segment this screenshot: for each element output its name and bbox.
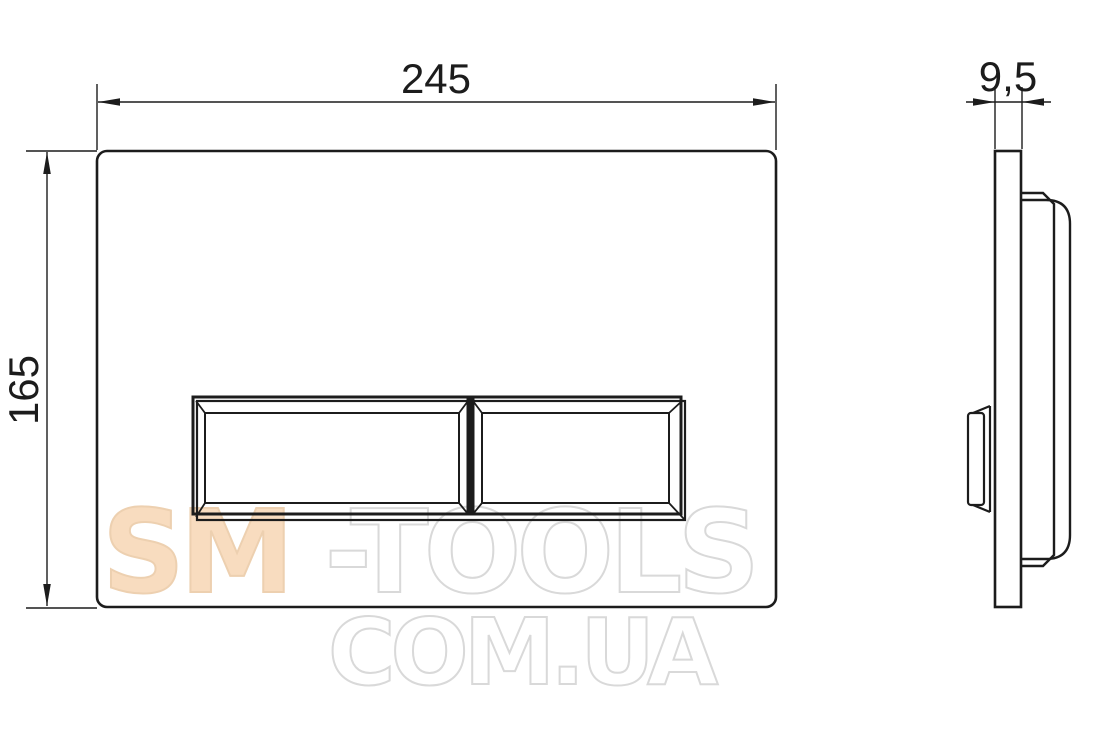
drawing-canvas: SM -TOOLS COM.UA [0,0,1102,735]
height-dimension-label: 165 [0,355,47,425]
arrowhead-right [753,98,775,106]
arrowhead-top [43,152,51,174]
watermark-line2: COM.UA [328,599,718,706]
arrowhead-left [98,98,120,106]
side-view-button-profile [968,406,990,512]
side-view-frame-flange [1021,193,1054,566]
depth-dimension-label: 9,5 [979,53,1037,100]
side-view-plate [995,151,1021,607]
width-dimension-label: 245 [401,55,471,102]
arrowhead-bottom [43,584,51,606]
side-view-frame [1021,200,1070,559]
side-view [968,151,1070,607]
button-divider [467,398,475,515]
watermark-accent-text: SM [102,486,289,620]
